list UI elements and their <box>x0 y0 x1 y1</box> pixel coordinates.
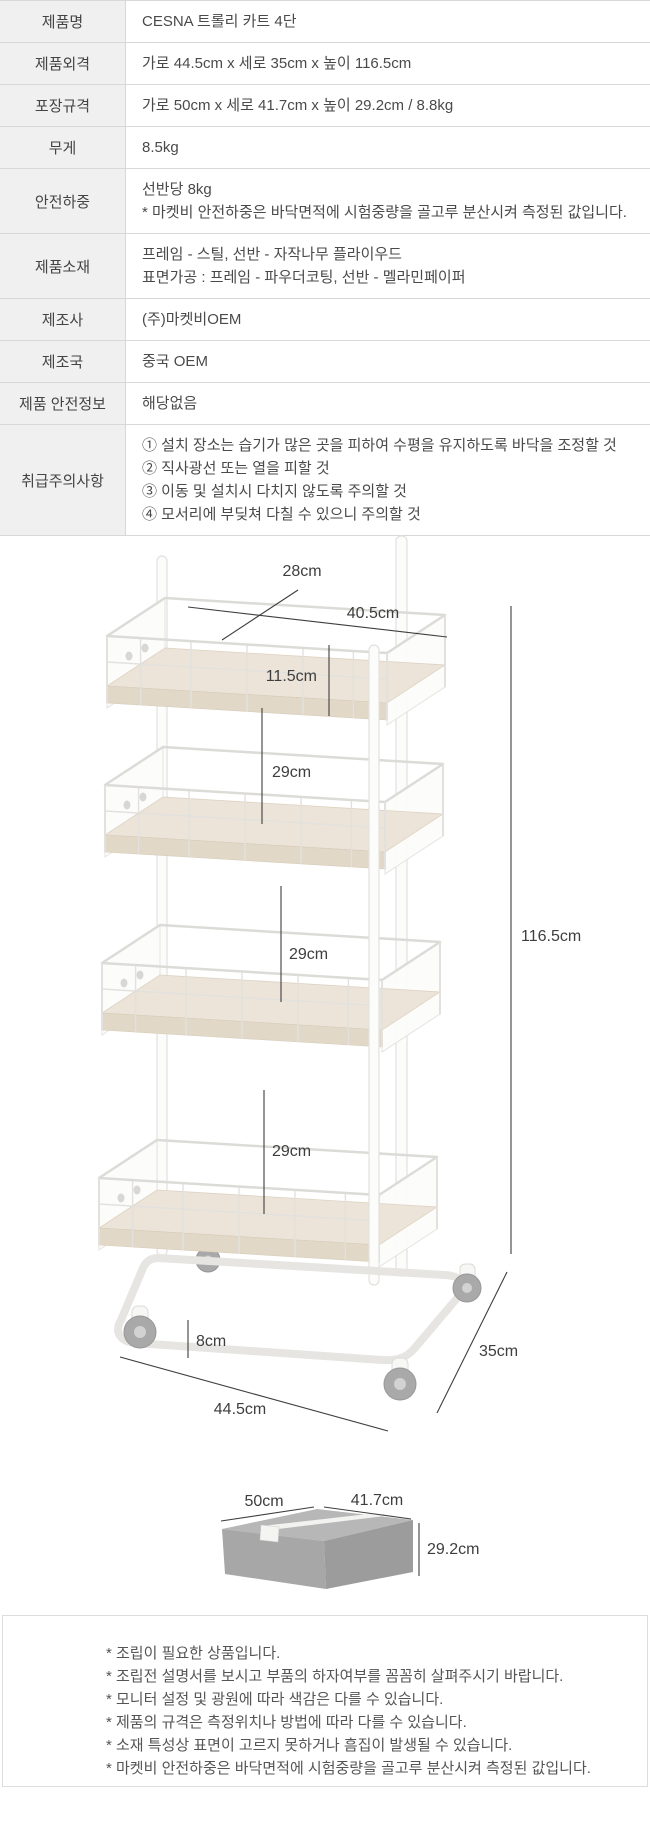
dim-label-box-height: 29.2cm <box>427 1541 479 1558</box>
spec-table: 제품명CESNA 트롤리 카트 4단제품외격가로 44.5cm x 세로 35c… <box>0 0 650 536</box>
box-dimension-diagram: 50cm 41.7cm 29.2cm <box>0 1440 650 1615</box>
spec-row: 제품명CESNA 트롤리 카트 4단 <box>0 1 650 43</box>
footnote-line: * 조립전 설명서를 보시고 부품의 하자여부를 꼼꼼히 살펴주시기 바랍니다. <box>106 1665 637 1688</box>
spec-row-label: 포장규격 <box>0 85 126 126</box>
spec-value-line: 프레임 - 스틸, 선반 - 자작나무 플라이우드 <box>142 243 640 266</box>
footnotes-box: * 조립이 필요한 상품입니다.* 조립전 설명서를 보시고 부품의 하자여부를… <box>2 1615 648 1787</box>
spec-value-line: 중국 OEM <box>142 350 640 373</box>
spec-row-value: 프레임 - 스틸, 선반 - 자작나무 플라이우드표면가공 : 프레임 - 파우… <box>126 234 650 298</box>
spec-row: 안전하중선반당 8kg* 마켓비 안전하중은 바닥면적에 시험중량을 골고루 분… <box>0 169 650 234</box>
spec-row-value: 가로 50cm x 세로 41.7cm x 높이 29.2cm / 8.8kg <box>126 85 650 126</box>
footnote-line: * 제품의 규격은 측정위치나 방법에 따라 다를 수 있습니다. <box>106 1711 637 1734</box>
spec-row-label: 제조국 <box>0 341 126 382</box>
dim-label-overall-height: 116.5cm <box>521 928 581 945</box>
spec-row: 무게8.5kg <box>0 127 650 169</box>
spec-row-label: 제조사 <box>0 299 126 340</box>
spec-value-line: 가로 50cm x 세로 41.7cm x 높이 29.2cm / 8.8kg <box>142 94 640 117</box>
spec-row: 제품소재프레임 - 스틸, 선반 - 자작나무 플라이우드표면가공 : 프레임 … <box>0 234 650 299</box>
footnote-line: * 조립이 필요한 상품입니다. <box>106 1642 637 1665</box>
basket-3 <box>102 925 440 1052</box>
product-spec-page: 제품명CESNA 트롤리 카트 4단제품외격가로 44.5cm x 세로 35c… <box>0 0 650 1835</box>
cart-illustration <box>99 536 481 1400</box>
footnote-line: * 소재 특성상 표면이 고르지 못하거나 흠집이 발생될 수 있습니다. <box>106 1734 637 1757</box>
cart-front-right-post <box>369 645 379 1285</box>
spec-row-value: 8.5kg <box>126 127 650 168</box>
dim-label-top-width: 40.5cm <box>347 605 399 622</box>
dim-label-overall-depth: 35cm <box>479 1343 518 1360</box>
spec-value-line: * 마켓비 안전하중은 바닥면적에 시험중량을 골고루 분산시켜 측정된 값입니… <box>142 201 640 224</box>
spec-row-value: CESNA 트롤리 카트 4단 <box>126 1 650 42</box>
spec-row: 제품외격가로 44.5cm x 세로 35cm x 높이 116.5cm <box>0 43 650 85</box>
spec-row: 제품 안전정보해당없음 <box>0 383 650 425</box>
spec-row-label: 제품명 <box>0 1 126 42</box>
dim-label-top-depth: 28cm <box>282 563 321 580</box>
spec-row-value: 해당없음 <box>126 383 650 424</box>
caster-front-right <box>384 1358 416 1400</box>
spec-row: 포장규격가로 50cm x 세로 41.7cm x 높이 29.2cm / 8.… <box>0 85 650 127</box>
spec-value-line: 8.5kg <box>142 136 640 159</box>
spec-value-line: CESNA 트롤리 카트 4단 <box>142 10 640 33</box>
spec-row-label: 무게 <box>0 127 126 168</box>
cart-dimension-diagram: 28cm 40.5cm 11.5cm 29cm 29cm 29cm 116.5c… <box>0 490 650 1450</box>
spec-value-line: (주)마켓비OEM <box>142 308 640 331</box>
dim-label-caster-height: 8cm <box>196 1333 226 1350</box>
dim-label-box-width: 50cm <box>244 1493 283 1510</box>
spec-row: 제조국중국 OEM <box>0 341 650 383</box>
footnote-line: * 모니터 설정 및 광원에 따라 색감은 다를 수 있습니다. <box>106 1688 637 1711</box>
caster-front-left <box>124 1306 156 1348</box>
basket-4 <box>99 1140 437 1267</box>
spec-value-line: ① 설치 장소는 습기가 많은 곳을 피하여 수평을 유지하도록 바닥을 조정할… <box>142 434 640 457</box>
spec-row-label: 제품 안전정보 <box>0 383 126 424</box>
spec-row-label: 제품소재 <box>0 234 126 298</box>
box-illustration <box>222 1509 413 1589</box>
spec-row-value: 중국 OEM <box>126 341 650 382</box>
cart-bottom-frame <box>118 1258 463 1360</box>
spec-row-value: (주)마켓비OEM <box>126 299 650 340</box>
dim-label-shelf-gap-1: 29cm <box>272 764 311 781</box>
spec-row: 제조사(주)마켓비OEM <box>0 299 650 341</box>
spec-value-line: ② 직사광선 또는 열을 피할 것 <box>142 457 640 480</box>
spec-value-line: 가로 44.5cm x 세로 35cm x 높이 116.5cm <box>142 52 640 75</box>
footnote-line: * 마켓비 안전하중은 바닥면적에 시험중량을 골고루 분산시켜 측정된 값입니… <box>106 1757 637 1780</box>
spec-value-line: 표면가공 : 프레임 - 파우더코팅, 선반 - 멜라민페이퍼 <box>142 266 640 289</box>
spec-value-line: 선반당 8kg <box>142 178 640 201</box>
spec-row-label: 제품외격 <box>0 43 126 84</box>
dim-label-shelf-gap-3: 29cm <box>272 1143 311 1160</box>
spec-value-line: 해당없음 <box>142 392 640 415</box>
dim-label-box-depth: 41.7cm <box>351 1492 403 1509</box>
box-tape-tab <box>260 1525 279 1542</box>
dim-label-overall-width: 44.5cm <box>214 1401 266 1418</box>
spec-row-value: 선반당 8kg* 마켓비 안전하중은 바닥면적에 시험중량을 골고루 분산시켜 … <box>126 169 650 233</box>
dim-label-basket-height: 11.5cm <box>266 668 317 685</box>
caster-rear-right <box>453 1264 481 1302</box>
spec-row-label: 안전하중 <box>0 169 126 233</box>
spec-row-value: 가로 44.5cm x 세로 35cm x 높이 116.5cm <box>126 43 650 84</box>
dim-label-shelf-gap-2: 29cm <box>289 946 328 963</box>
